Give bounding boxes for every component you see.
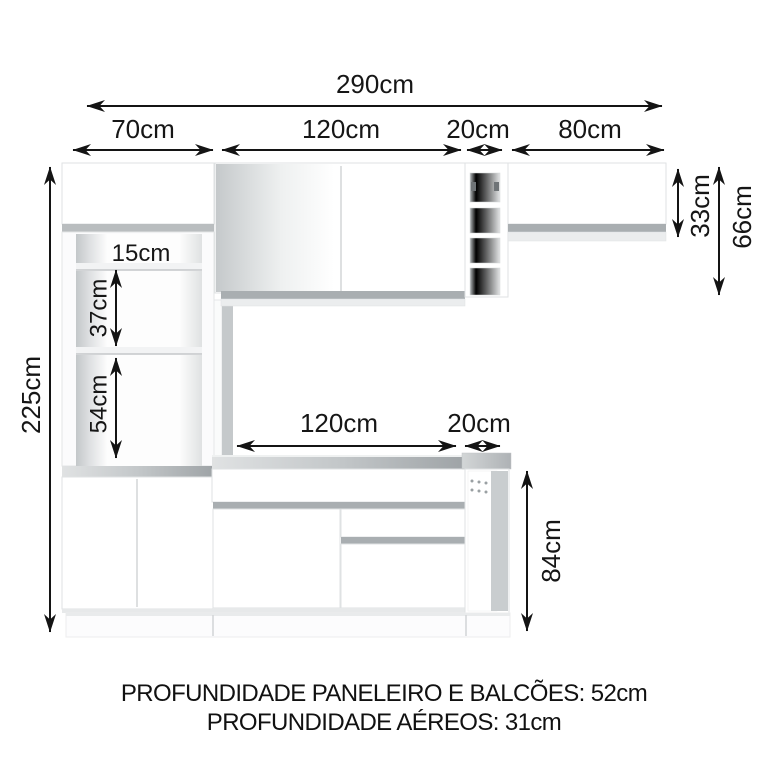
- paneleiro-base-shadow: [62, 609, 214, 613]
- label-col-nicho: 20cm: [446, 114, 510, 144]
- nicho-tower-20cm: [465, 163, 508, 297]
- paneleiro-counter-edge: [62, 466, 215, 477]
- aereo-80-door: [508, 163, 666, 224]
- nicho-balcao-top: [462, 453, 511, 469]
- depth-note-line2: PROFUNDIDADE AÉREOS: 31cm: [207, 709, 561, 736]
- aereo-120-bottom-rail: [221, 291, 465, 299]
- aereo-120-left-shade: [216, 164, 334, 292]
- label-niche-15cm: 15cm: [112, 240, 171, 267]
- label-base-height: 84cm: [536, 519, 566, 583]
- paneleiro-side-panel: [214, 300, 222, 466]
- depth-notes: PROFUNDIDADE PANELEIRO E BALCÕES: 52cm P…: [121, 679, 647, 736]
- paneleiro-shelf-2: [76, 347, 202, 354]
- nicho-balcao-20cm: [462, 453, 511, 613]
- nicho-compartment-3: [470, 238, 500, 263]
- label-niche-54cm: 54cm: [86, 375, 113, 434]
- nicho-hinge-left: [471, 182, 476, 191]
- balcao-countertop: [212, 456, 466, 469]
- balcao-drawer-rail: [341, 537, 465, 544]
- paneleiro-top-door: [62, 163, 214, 224]
- plinth-shadow: [66, 613, 510, 616]
- paneleiro-base-doors: [62, 477, 214, 609]
- diagram-canvas: 290cm 70cm 120cm 20cm 80cm 225cm 15cm 37…: [0, 0, 780, 780]
- balcao-120cm: [212, 456, 466, 613]
- aereo-120-bottom-lip: [221, 299, 465, 306]
- label-base-nicho-width: 20cm: [447, 408, 511, 438]
- aereo-80-bottom-lip: [508, 232, 666, 241]
- label-col-aereo: 120cm: [302, 114, 380, 144]
- nicho-compartment-2: [470, 208, 500, 233]
- depth-note-line1: PROFUNDIDADE PANELEIRO E BALCÕES: 52cm: [121, 679, 647, 707]
- aereo-80cm: [508, 163, 666, 241]
- balcao-top-band: [212, 469, 465, 502]
- balcao-drawer-1: [341, 509, 465, 537]
- balcao-drawer-2: [341, 544, 465, 608]
- label-niche-37cm: 37cm: [86, 279, 113, 338]
- label-aereo2-height: 33cm: [685, 174, 715, 238]
- aereo-80-bottom-rail: [508, 224, 666, 232]
- paneleiro-top-edge: [62, 224, 214, 232]
- balcao-door: [213, 509, 340, 608]
- balcao-top-rail: [213, 502, 465, 509]
- label-base-width: 120cm: [300, 408, 378, 438]
- aereo-120cm: [215, 163, 465, 306]
- plinth-base: [66, 613, 510, 637]
- label-aereo-stack-height: 66cm: [727, 185, 757, 249]
- nicho-hinge-right: [494, 182, 499, 191]
- label-height-total: 225cm: [16, 356, 46, 434]
- nicho-balcao-side: [491, 471, 508, 611]
- side-filler-strip: [222, 300, 233, 466]
- nicho-compartment-4: [470, 268, 500, 295]
- label-col-paneleiro: 70cm: [111, 114, 175, 144]
- balcao-bottom-shadow: [213, 608, 465, 613]
- plinth: [66, 613, 510, 637]
- label-total-width: 290cm: [336, 69, 414, 99]
- label-col-aereo2: 80cm: [558, 114, 622, 144]
- kitchen-dimension-diagram: 290cm 70cm 120cm 20cm 80cm 225cm 15cm 37…: [0, 0, 780, 780]
